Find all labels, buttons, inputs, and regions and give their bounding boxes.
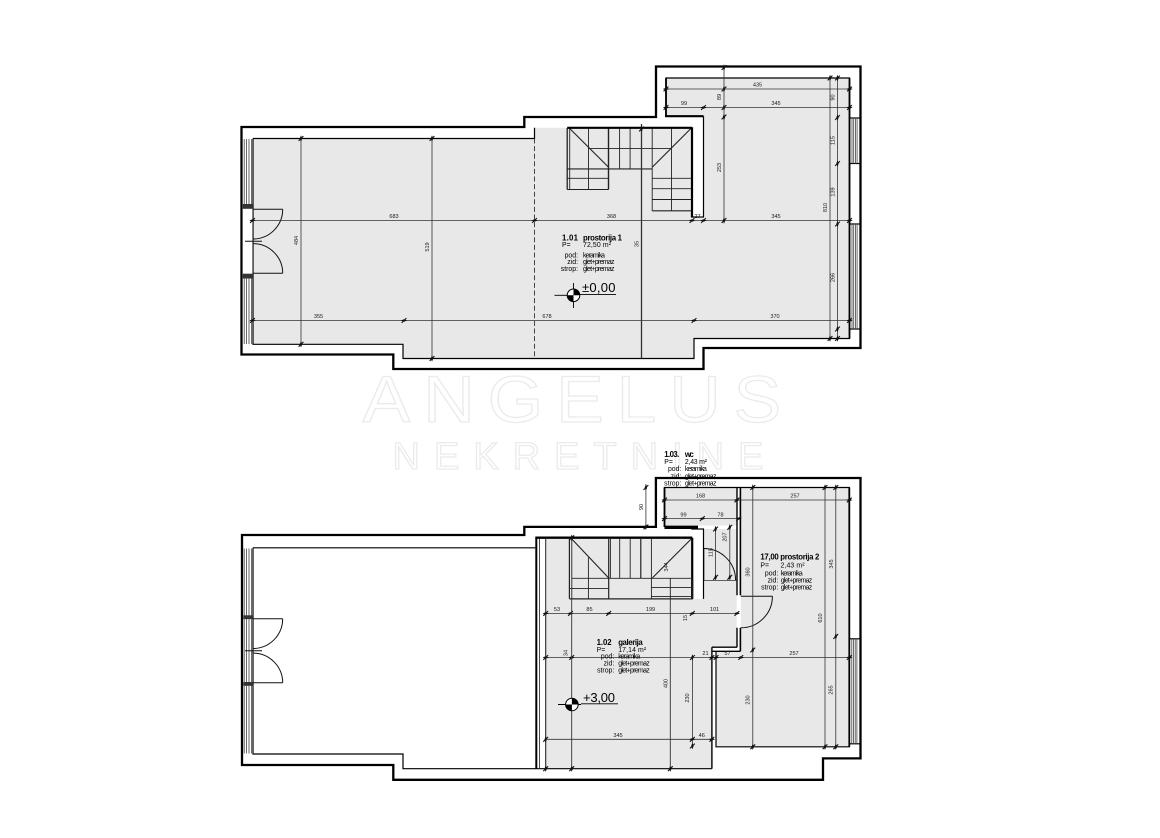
svg-text:2,43 m²: 2,43 m²: [685, 459, 708, 466]
svg-text:glet+premaz: glet+premaz: [685, 473, 717, 480]
svg-text:683: 683: [389, 214, 398, 220]
svg-text:46: 46: [699, 733, 705, 739]
svg-text:17,00 prostorija 2: 17,00 prostorija 2: [760, 553, 820, 562]
svg-text:89: 89: [717, 94, 723, 100]
svg-text:810: 810: [823, 203, 829, 212]
svg-text:265: 265: [829, 685, 835, 694]
svg-text:NEKRETNINE: NEKRETNINE: [393, 436, 778, 478]
svg-text:ANGELUS: ANGELUS: [363, 362, 794, 436]
svg-text:pod:: pod:: [765, 570, 778, 577]
svg-text:266: 266: [831, 273, 837, 282]
svg-text:368: 368: [607, 214, 616, 220]
svg-text:1.02: 1.02: [597, 638, 613, 647]
svg-text:610: 610: [818, 613, 824, 622]
svg-text:2,43 m²: 2,43 m²: [781, 562, 806, 569]
svg-text:glet+premaz: glet+premaz: [618, 667, 650, 674]
svg-text:99: 99: [680, 512, 686, 518]
svg-text:galerija: galerija: [618, 638, 643, 647]
svg-text:35: 35: [634, 241, 640, 247]
svg-text:glet+premaz: glet+premaz: [781, 578, 813, 585]
svg-text:435: 435: [753, 83, 762, 89]
svg-text:344: 344: [664, 562, 670, 571]
svg-text:72,50 m²: 72,50 m²: [583, 242, 612, 249]
svg-text:257: 257: [789, 651, 798, 657]
svg-text:1.03.: 1.03.: [664, 450, 679, 459]
svg-text:253: 253: [717, 163, 723, 172]
svg-text:57: 57: [724, 651, 730, 657]
svg-text:115: 115: [708, 548, 714, 557]
svg-text:99: 99: [681, 101, 687, 107]
svg-text:355: 355: [314, 314, 323, 320]
svg-text:90: 90: [639, 504, 645, 510]
svg-text:400: 400: [664, 679, 670, 688]
svg-text:P=: P=: [664, 459, 673, 466]
svg-text:15: 15: [683, 615, 689, 621]
svg-text:34: 34: [564, 650, 570, 656]
svg-text:199: 199: [646, 607, 655, 613]
svg-text:pod:: pod:: [668, 466, 681, 473]
svg-text:360: 360: [746, 567, 752, 576]
svg-text:207: 207: [722, 532, 728, 541]
svg-text:27: 27: [694, 214, 700, 220]
svg-text:101: 101: [710, 607, 719, 613]
svg-text:zid:: zid:: [768, 578, 779, 585]
svg-text:P=: P=: [760, 562, 769, 569]
svg-text:484: 484: [294, 236, 300, 245]
svg-text:370: 370: [770, 314, 779, 320]
svg-text:strop:: strop:: [664, 481, 681, 488]
svg-text:keramika: keramika: [685, 466, 707, 473]
svg-text:85: 85: [586, 607, 592, 613]
svg-text:zid:: zid:: [671, 473, 682, 480]
svg-text:230: 230: [746, 695, 752, 704]
svg-text:21: 21: [702, 651, 708, 657]
svg-text:strop:: strop:: [597, 667, 614, 674]
svg-text:115: 115: [831, 136, 837, 145]
svg-text:90: 90: [831, 94, 837, 100]
svg-text:345: 345: [829, 559, 835, 568]
svg-text:678: 678: [542, 314, 551, 320]
svg-text:strop:: strop:: [561, 266, 578, 273]
svg-text:345: 345: [771, 101, 780, 107]
svg-text:glet+premaz: glet+premaz: [781, 585, 813, 592]
svg-text:P=: P=: [562, 242, 571, 249]
svg-text:168: 168: [696, 493, 705, 499]
svg-text:139: 139: [831, 187, 837, 196]
svg-text:wc: wc: [684, 450, 695, 459]
svg-text:78: 78: [717, 512, 723, 518]
svg-text:345: 345: [613, 733, 622, 739]
svg-text:345: 345: [771, 214, 780, 220]
svg-text:glet+premaz: glet+premaz: [685, 481, 717, 488]
svg-text:519: 519: [425, 242, 431, 251]
svg-text:230: 230: [685, 693, 691, 702]
svg-text:53: 53: [554, 607, 560, 613]
svg-text:±0,00: ±0,00: [582, 280, 616, 295]
svg-text:strop:: strop:: [761, 585, 778, 592]
svg-text:glet+premaz: glet+premaz: [583, 266, 615, 273]
svg-text:+3,00: +3,00: [583, 690, 615, 705]
svg-text:keramika: keramika: [781, 570, 803, 577]
svg-text:257: 257: [790, 493, 799, 499]
